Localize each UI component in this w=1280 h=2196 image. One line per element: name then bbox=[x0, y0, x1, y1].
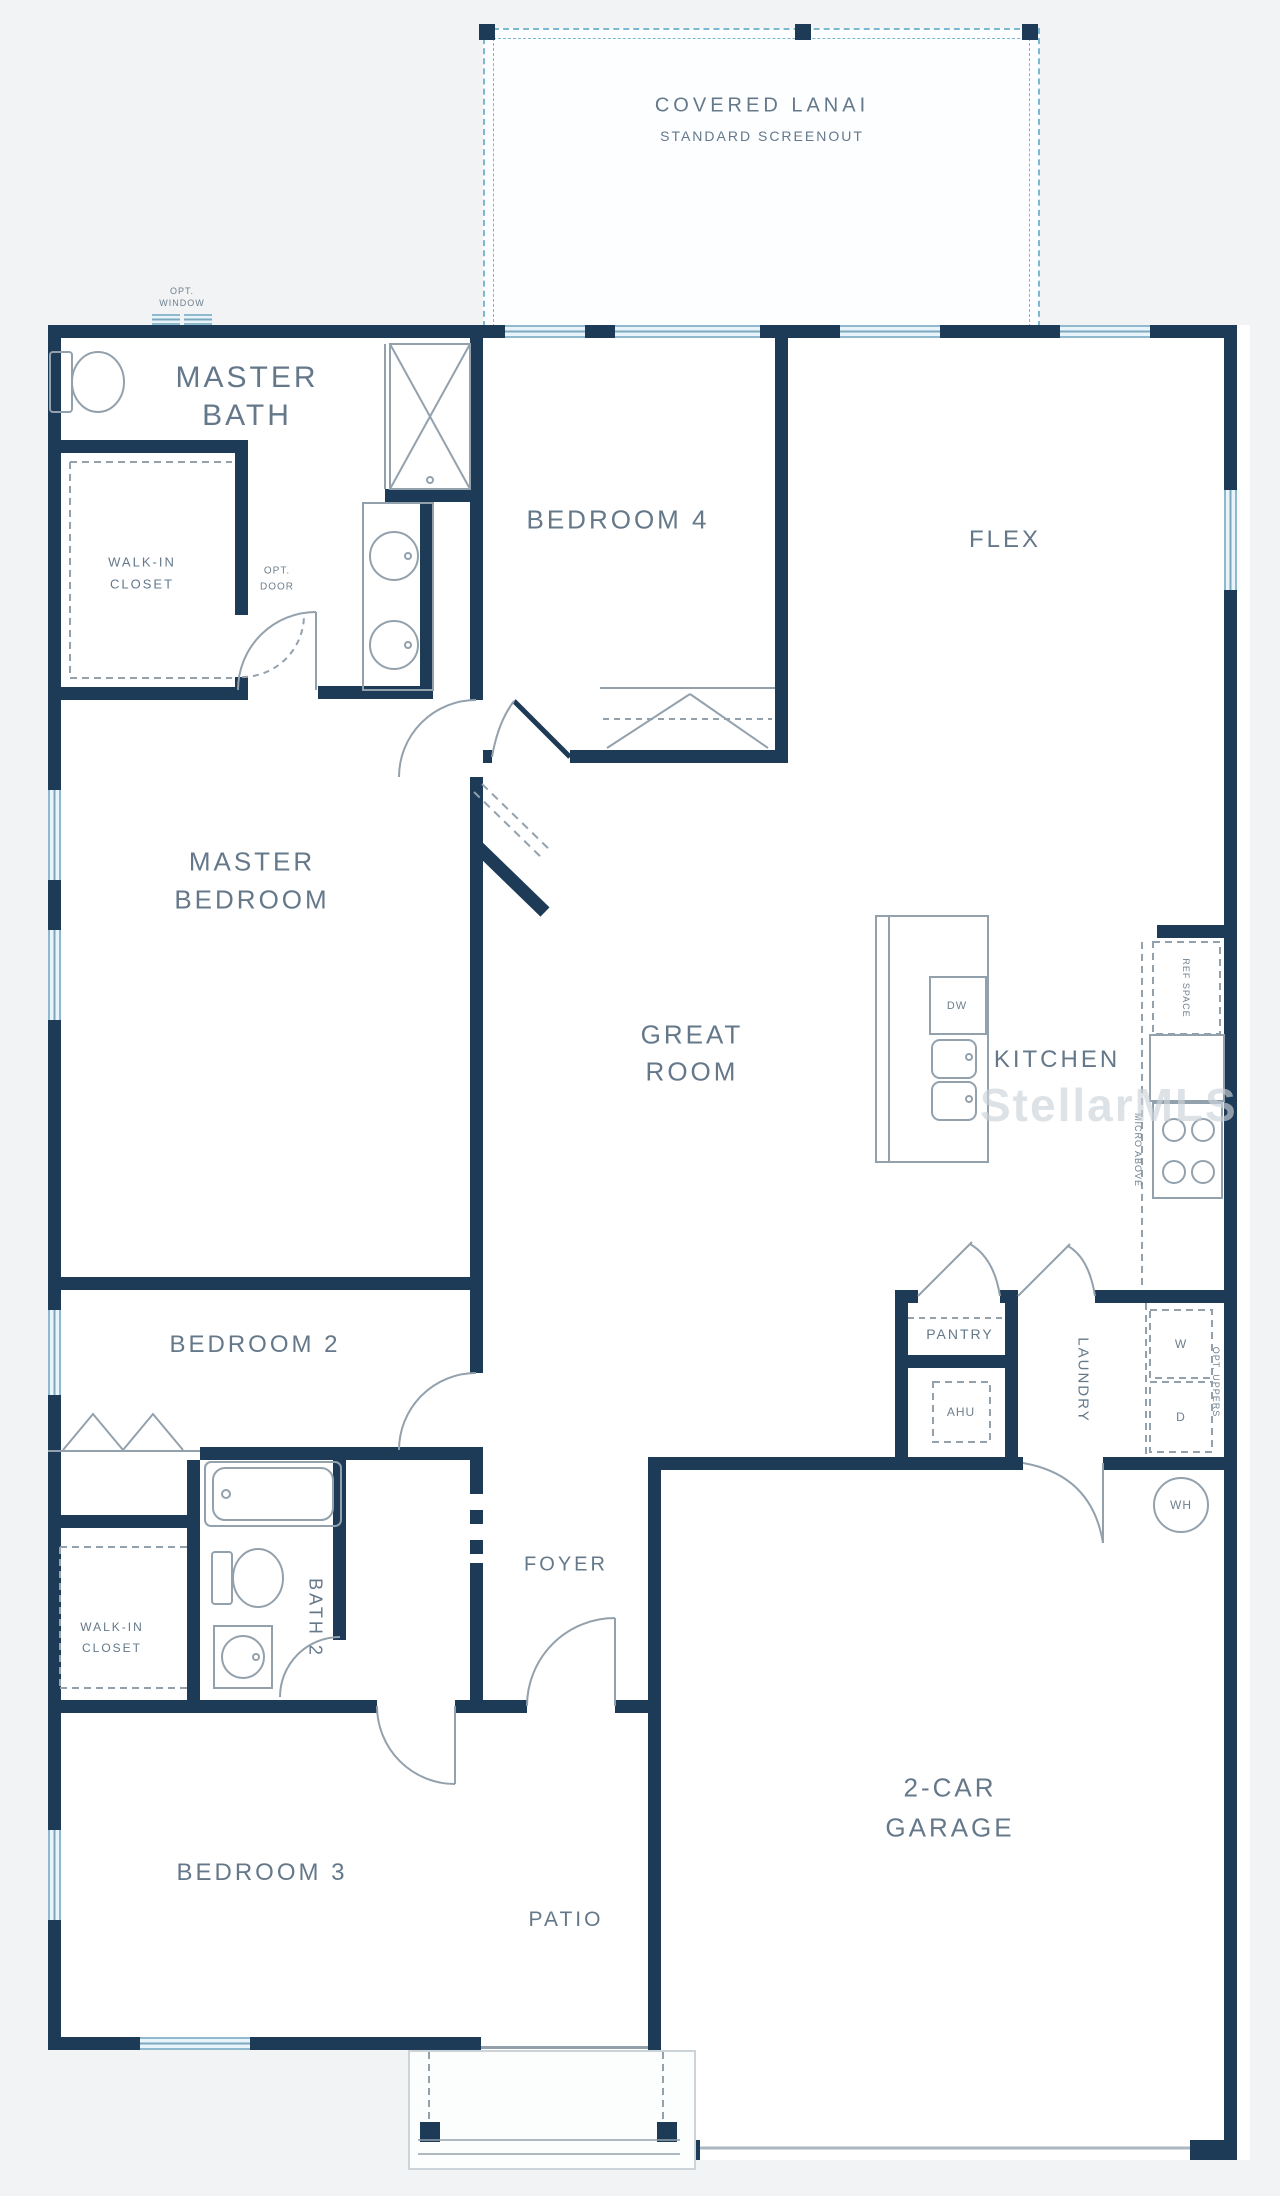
wall-segment bbox=[48, 687, 248, 700]
wall-segment bbox=[48, 1515, 187, 1528]
covered-lanai-screen bbox=[483, 28, 1040, 327]
dryer-label: D bbox=[1176, 1410, 1186, 1424]
room-label-walkin-master: CLOSET bbox=[110, 577, 174, 592]
room-label-walkin-bed3: CLOSET bbox=[82, 1641, 142, 1655]
lanai-post bbox=[479, 24, 495, 40]
room-label-kitchen: KITCHEN bbox=[994, 1046, 1120, 1074]
lanai-label-line1: COVERED LANAI bbox=[655, 95, 869, 118]
window bbox=[840, 325, 940, 338]
window bbox=[140, 2037, 250, 2050]
wall-segment bbox=[470, 777, 483, 1373]
window bbox=[48, 930, 61, 1020]
wall-segment bbox=[250, 2037, 481, 2050]
room-label-bedroom3: BEDROOM 3 bbox=[176, 1859, 347, 1887]
room-label-master-bedroom: BEDROOM bbox=[174, 885, 329, 916]
wall-segment bbox=[1157, 925, 1224, 938]
wall-segment bbox=[187, 1460, 200, 1700]
wall-segment bbox=[615, 1700, 648, 1713]
window bbox=[48, 1830, 61, 1920]
lanai-label-line2: STANDARD SCREENOUT bbox=[660, 128, 864, 144]
lanai-post bbox=[795, 24, 811, 40]
wall-segment bbox=[48, 1277, 483, 1290]
wall-segment bbox=[1103, 1457, 1237, 1470]
lanai-inner-screen bbox=[493, 38, 1030, 327]
room-label-great-room: GREAT bbox=[641, 1020, 744, 1051]
wall-segment bbox=[470, 1563, 483, 1713]
wall-segment bbox=[48, 440, 248, 453]
opt-window-label: OPT. bbox=[170, 286, 194, 296]
wall-segment bbox=[1224, 325, 1237, 2160]
wall-segment bbox=[48, 1700, 377, 1713]
ref-space-label: REF SPACE bbox=[1181, 958, 1191, 1017]
wall-segment bbox=[318, 686, 433, 699]
cased-opening bbox=[470, 1480, 483, 1563]
window bbox=[505, 325, 585, 338]
wall-segment bbox=[470, 1447, 483, 1480]
room-label-garage: 2-CAR bbox=[903, 1773, 996, 1804]
washer-label: W bbox=[1175, 1337, 1187, 1351]
wall-segment bbox=[235, 440, 248, 615]
porch-post bbox=[657, 2122, 677, 2142]
wall-segment bbox=[48, 325, 61, 2050]
wall-segment bbox=[895, 1355, 1018, 1368]
opt-uppers-label: OPT. UPPERS bbox=[1211, 1347, 1221, 1418]
opt-window bbox=[184, 314, 212, 325]
room-label-flex: FLEX bbox=[969, 526, 1041, 554]
wall-segment bbox=[333, 1447, 346, 1640]
footprint-notch bbox=[0, 2050, 475, 2196]
closet-track bbox=[48, 1450, 200, 1452]
wall-segment bbox=[775, 338, 788, 763]
window bbox=[48, 1310, 61, 1395]
room-label-patio: PATIO bbox=[529, 1908, 604, 1932]
wall-segment bbox=[385, 489, 483, 502]
sliding-door bbox=[615, 325, 760, 338]
room-label-garage: GARAGE bbox=[885, 1813, 1014, 1844]
opt-window-label: WINDOW bbox=[159, 298, 205, 308]
footprint-notch bbox=[475, 2166, 650, 2196]
wall-segment bbox=[895, 1290, 908, 1457]
opt-door-label: DOOR bbox=[260, 582, 294, 593]
wall-segment bbox=[470, 338, 483, 700]
stellar-mls-watermark: StellarMLS bbox=[980, 1078, 1238, 1132]
room-label-bath2: BATH 2 bbox=[305, 1578, 326, 1658]
wall-segment bbox=[455, 1700, 527, 1713]
room-label-master-bath: MASTER bbox=[175, 361, 318, 395]
lanai-post bbox=[1022, 24, 1038, 40]
room-label-walkin-bed3: WALK-IN bbox=[80, 1620, 144, 1634]
wall-segment bbox=[235, 677, 248, 700]
wall-segment bbox=[420, 500, 433, 697]
wall-segment bbox=[648, 1457, 1023, 1470]
patio-edge bbox=[481, 2046, 648, 2049]
entry-porch bbox=[408, 2050, 696, 2170]
dishwasher-label: DW bbox=[947, 1000, 967, 1012]
wall-segment bbox=[1005, 1290, 1018, 1457]
ahu-label: AHU bbox=[947, 1405, 975, 1419]
opt-window bbox=[152, 314, 180, 325]
window bbox=[1060, 325, 1150, 338]
room-label-bedroom4: BEDROOM 4 bbox=[526, 505, 709, 536]
room-label-master-bedroom: MASTER bbox=[189, 847, 315, 878]
room-label-master-bath: BATH bbox=[202, 399, 292, 433]
room-label-bedroom2: BEDROOM 2 bbox=[169, 1331, 340, 1359]
wall-segment bbox=[1095, 1290, 1224, 1303]
room-label-walkin-master: WALK-IN bbox=[108, 555, 176, 570]
wall-segment bbox=[570, 750, 788, 763]
room-label-pantry: PANTRY bbox=[926, 1326, 994, 1342]
opt-door-label: OPT. bbox=[264, 566, 290, 577]
window bbox=[1224, 490, 1237, 590]
room-label-laundry: LAUNDRY bbox=[1075, 1337, 1092, 1422]
water-heater-label: WH bbox=[1170, 1498, 1192, 1512]
wall-segment bbox=[483, 750, 492, 763]
wall-segment bbox=[48, 2037, 140, 2050]
room-label-foyer: FOYER bbox=[524, 1554, 608, 1577]
window bbox=[48, 790, 61, 880]
porch-post bbox=[420, 2122, 440, 2142]
room-label-great-room: ROOM bbox=[646, 1057, 739, 1088]
floor-plan: COVERED LANAI STANDARD SCREENOUT bbox=[0, 0, 1280, 2196]
